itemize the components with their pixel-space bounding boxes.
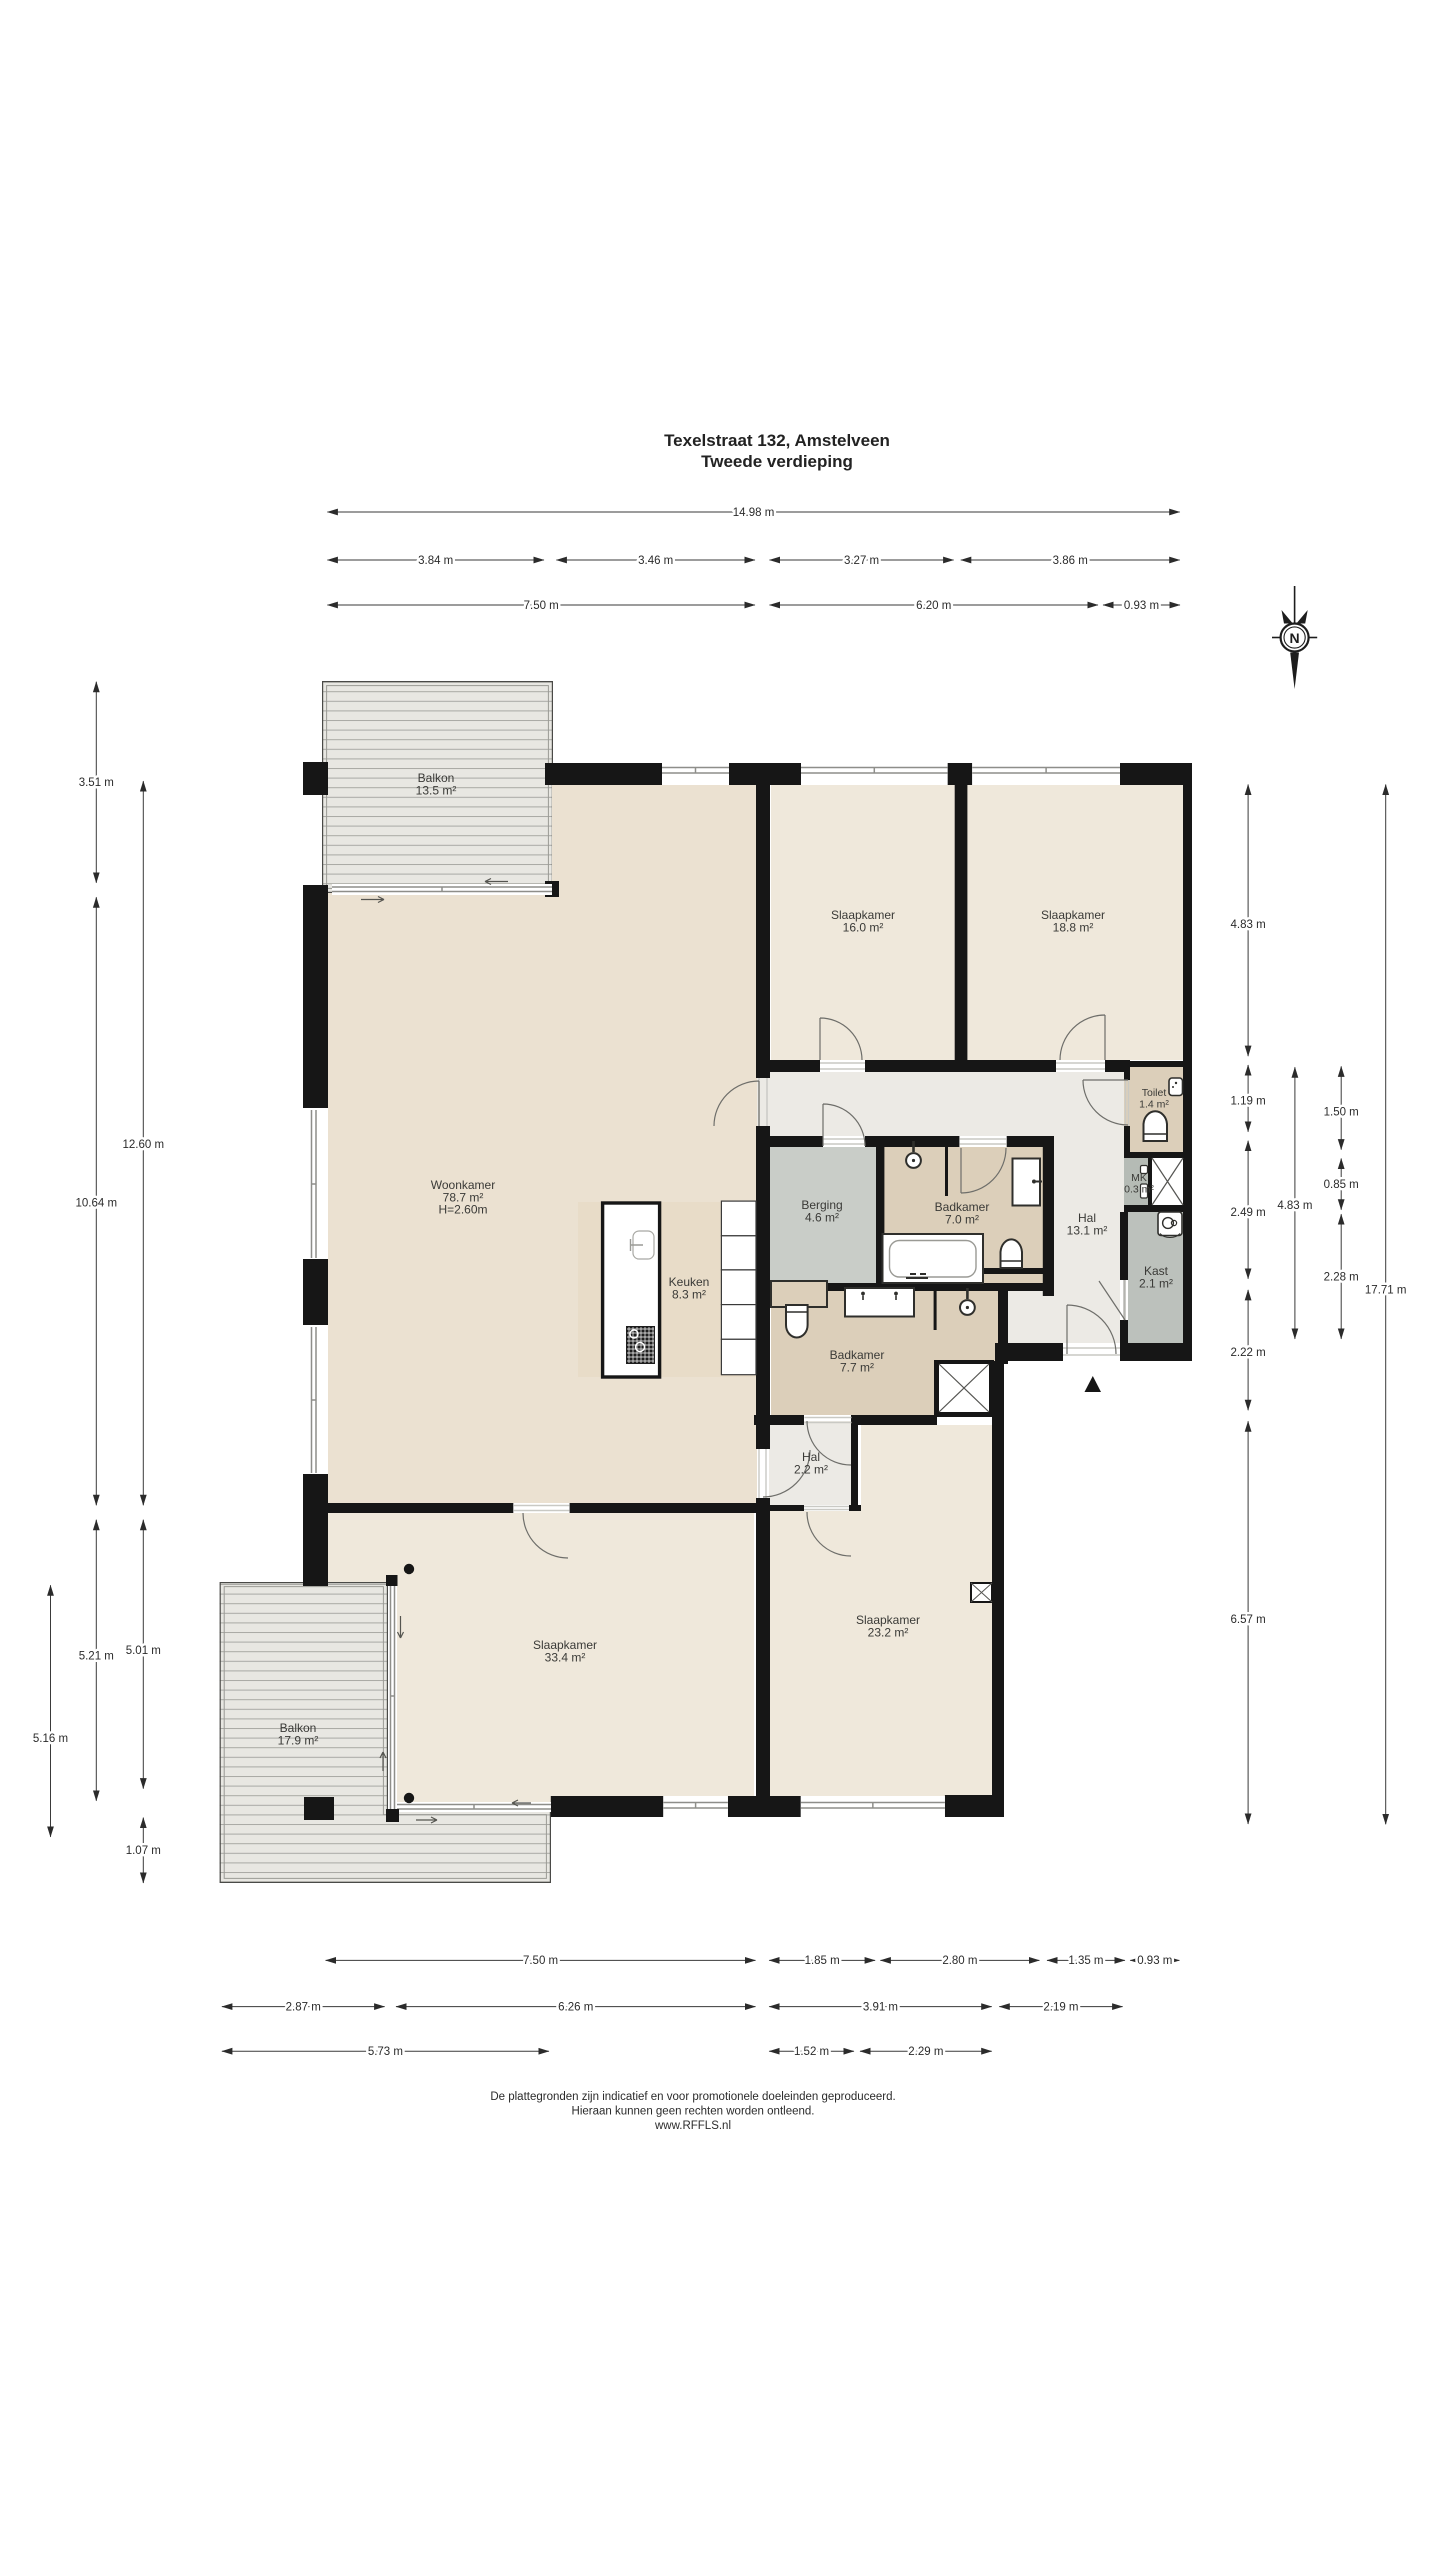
svg-text:3.27 m: 3.27 m <box>844 555 879 567</box>
svg-text:Tweede verdieping: Tweede verdieping <box>701 452 853 471</box>
svg-text:17.9 m²: 17.9 m² <box>278 1733 319 1747</box>
svg-text:www.RFFLS.nl: www.RFFLS.nl <box>654 2120 731 2132</box>
svg-text:Toilet: Toilet <box>1142 1087 1167 1099</box>
svg-text:2.29 m: 2.29 m <box>908 2046 943 2058</box>
svg-text:3.46 m: 3.46 m <box>638 555 673 567</box>
svg-text:14.98 m: 14.98 m <box>733 507 775 519</box>
svg-text:6.57 m: 6.57 m <box>1231 1614 1266 1626</box>
svg-text:3.51 m: 3.51 m <box>79 777 114 789</box>
svg-text:13.1 m²: 13.1 m² <box>1067 1223 1108 1237</box>
svg-text:8.3 m²: 8.3 m² <box>672 1287 706 1301</box>
svg-text:2.1 m²: 2.1 m² <box>1139 1276 1173 1290</box>
svg-text:12.60 m: 12.60 m <box>123 1139 165 1151</box>
svg-text:4.6 m²: 4.6 m² <box>805 1210 839 1224</box>
svg-text:5.21 m: 5.21 m <box>79 1650 114 1662</box>
svg-text:4.83 m: 4.83 m <box>1277 1200 1312 1212</box>
svg-text:18.8 m²: 18.8 m² <box>1053 920 1094 934</box>
svg-text:0.85 m: 0.85 m <box>1324 1179 1359 1191</box>
svg-text:1.19 m: 1.19 m <box>1231 1096 1266 1108</box>
svg-text:De plattegronden zijn indicati: De plattegronden zijn indicatief en voor… <box>490 2091 895 2103</box>
svg-text:3.86 m: 3.86 m <box>1053 555 1088 567</box>
svg-text:1.50 m: 1.50 m <box>1324 1107 1359 1119</box>
svg-text:13.5 m²: 13.5 m² <box>416 783 457 797</box>
svg-text:1.85 m: 1.85 m <box>805 1955 840 1967</box>
svg-text:5.73 m: 5.73 m <box>368 2046 403 2058</box>
svg-text:2.49 m: 2.49 m <box>1231 1207 1266 1219</box>
svg-text:23.2 m²: 23.2 m² <box>868 1625 909 1639</box>
svg-text:6.26 m: 6.26 m <box>558 2001 593 2013</box>
svg-text:5.01 m: 5.01 m <box>126 1645 161 1657</box>
svg-text:4.83 m: 4.83 m <box>1231 919 1266 931</box>
svg-text:10.64 m: 10.64 m <box>76 1197 118 1209</box>
svg-text:0.93 m: 0.93 m <box>1137 1955 1172 1967</box>
svg-text:1.07 m: 1.07 m <box>126 1845 161 1857</box>
svg-text:Hieraan kunnen geen rechten wo: Hieraan kunnen geen rechten worden ontle… <box>572 2106 815 2118</box>
svg-text:17.71 m: 17.71 m <box>1365 1285 1407 1297</box>
svg-text:2.2 m²: 2.2 m² <box>794 1462 828 1476</box>
svg-text:0.3 m²: 0.3 m² <box>1124 1184 1154 1196</box>
svg-text:N: N <box>1290 630 1300 646</box>
svg-text:1.35 m: 1.35 m <box>1068 1955 1103 1967</box>
svg-text:0.93 m: 0.93 m <box>1124 600 1159 612</box>
svg-text:7.7 m²: 7.7 m² <box>840 1360 874 1374</box>
svg-text:3.84 m: 3.84 m <box>418 555 453 567</box>
svg-text:7.50 m: 7.50 m <box>523 1955 558 1967</box>
svg-text:7.0 m²: 7.0 m² <box>945 1212 979 1226</box>
svg-text:1.52 m: 1.52 m <box>794 2046 829 2058</box>
svg-text:H=2.60m: H=2.60m <box>438 1203 487 1217</box>
svg-text:2.22 m: 2.22 m <box>1231 1347 1266 1359</box>
svg-text:2.28 m: 2.28 m <box>1324 1271 1359 1283</box>
svg-text:7.50 m: 7.50 m <box>524 600 559 612</box>
svg-text:5.16 m: 5.16 m <box>33 1733 68 1745</box>
svg-text:2.87 m: 2.87 m <box>286 2001 321 2013</box>
svg-text:16.0 m²: 16.0 m² <box>843 920 884 934</box>
svg-text:Texelstraat 132, Amstelveen: Texelstraat 132, Amstelveen <box>664 431 890 450</box>
svg-text:2.80 m: 2.80 m <box>942 1955 977 1967</box>
svg-text:6.20 m: 6.20 m <box>916 600 951 612</box>
svg-text:1.4 m²: 1.4 m² <box>1139 1099 1169 1111</box>
svg-text:33.4 m²: 33.4 m² <box>545 1650 586 1664</box>
svg-text:3.91 m: 3.91 m <box>863 2001 898 2013</box>
svg-text:MK: MK <box>1131 1172 1147 1184</box>
svg-text:2.19 m: 2.19 m <box>1043 2001 1078 2013</box>
